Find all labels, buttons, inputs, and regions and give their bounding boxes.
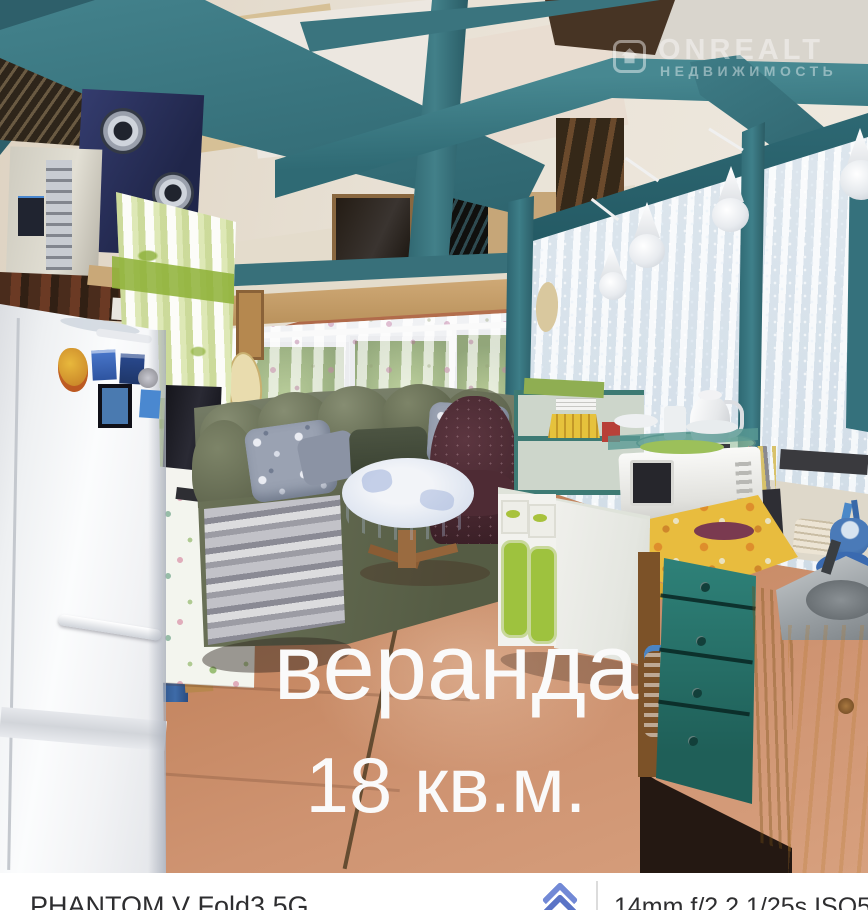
drawer-handle-green <box>533 514 547 522</box>
brand-chevron-icon <box>545 883 579 910</box>
watermark-tagline: НЕДВИЖИМОСТЬ <box>660 63 837 79</box>
microwave-panel <box>735 460 753 503</box>
cutting-board <box>694 522 754 540</box>
kettle-lid <box>698 390 722 400</box>
drawer-knob <box>700 582 710 592</box>
tablecloth-top <box>342 458 474 528</box>
audio-deck-display <box>18 196 44 236</box>
camera-info-bar: PHANTOM V Fold3 5G 14mm f/2.2 1/25s ISO5… <box>0 873 868 910</box>
bar-divider <box>596 881 598 910</box>
device-name: PHANTOM V Fold3 5G <box>30 891 309 910</box>
picture-frame <box>236 290 264 360</box>
fridge-magnet-round <box>138 368 158 388</box>
veranda-photo: ONREALT НЕДВИЖИМОСТЬ веранда 18 кв.м. <box>0 0 868 873</box>
drawer-handle-green <box>506 510 520 518</box>
audio-deck-buttons <box>46 160 72 270</box>
fridge-magnet-card <box>91 349 117 380</box>
drawer-knob <box>688 736 698 746</box>
plate-on-shelf <box>686 420 738 434</box>
inner-window <box>332 194 414 268</box>
listing-screenshot: ONREALT НЕДВИЖИМОСТЬ веранда 18 кв.м. PH… <box>0 0 868 910</box>
table-shadow <box>360 560 490 586</box>
plate-on-shelf <box>614 414 658 428</box>
watermark-house-icon <box>613 40 646 73</box>
yellow-basket <box>548 414 600 438</box>
house-glyph <box>619 46 640 67</box>
lamp-globe-1 <box>599 272 627 300</box>
green-tray <box>640 440 724 454</box>
fridge-magnet-figure <box>58 348 88 392</box>
camera-settings: 14mm f/2.2 1/25s ISO508 <box>614 893 868 910</box>
caption-title: веранда <box>44 620 868 714</box>
fridge-magnet-tag <box>139 389 161 418</box>
watermark: ONREALT НЕДВИЖИМОСТЬ <box>0 0 868 120</box>
fridge-magnet-framed <box>98 384 132 428</box>
lamp-globe-2 <box>629 234 665 268</box>
caption-subtitle: 18 кв.м. <box>24 746 868 824</box>
lamp-globe-3 <box>712 198 749 232</box>
sink-basin <box>806 580 868 620</box>
microwave-door <box>630 460 674 506</box>
plate-stack-shelf <box>556 398 596 410</box>
